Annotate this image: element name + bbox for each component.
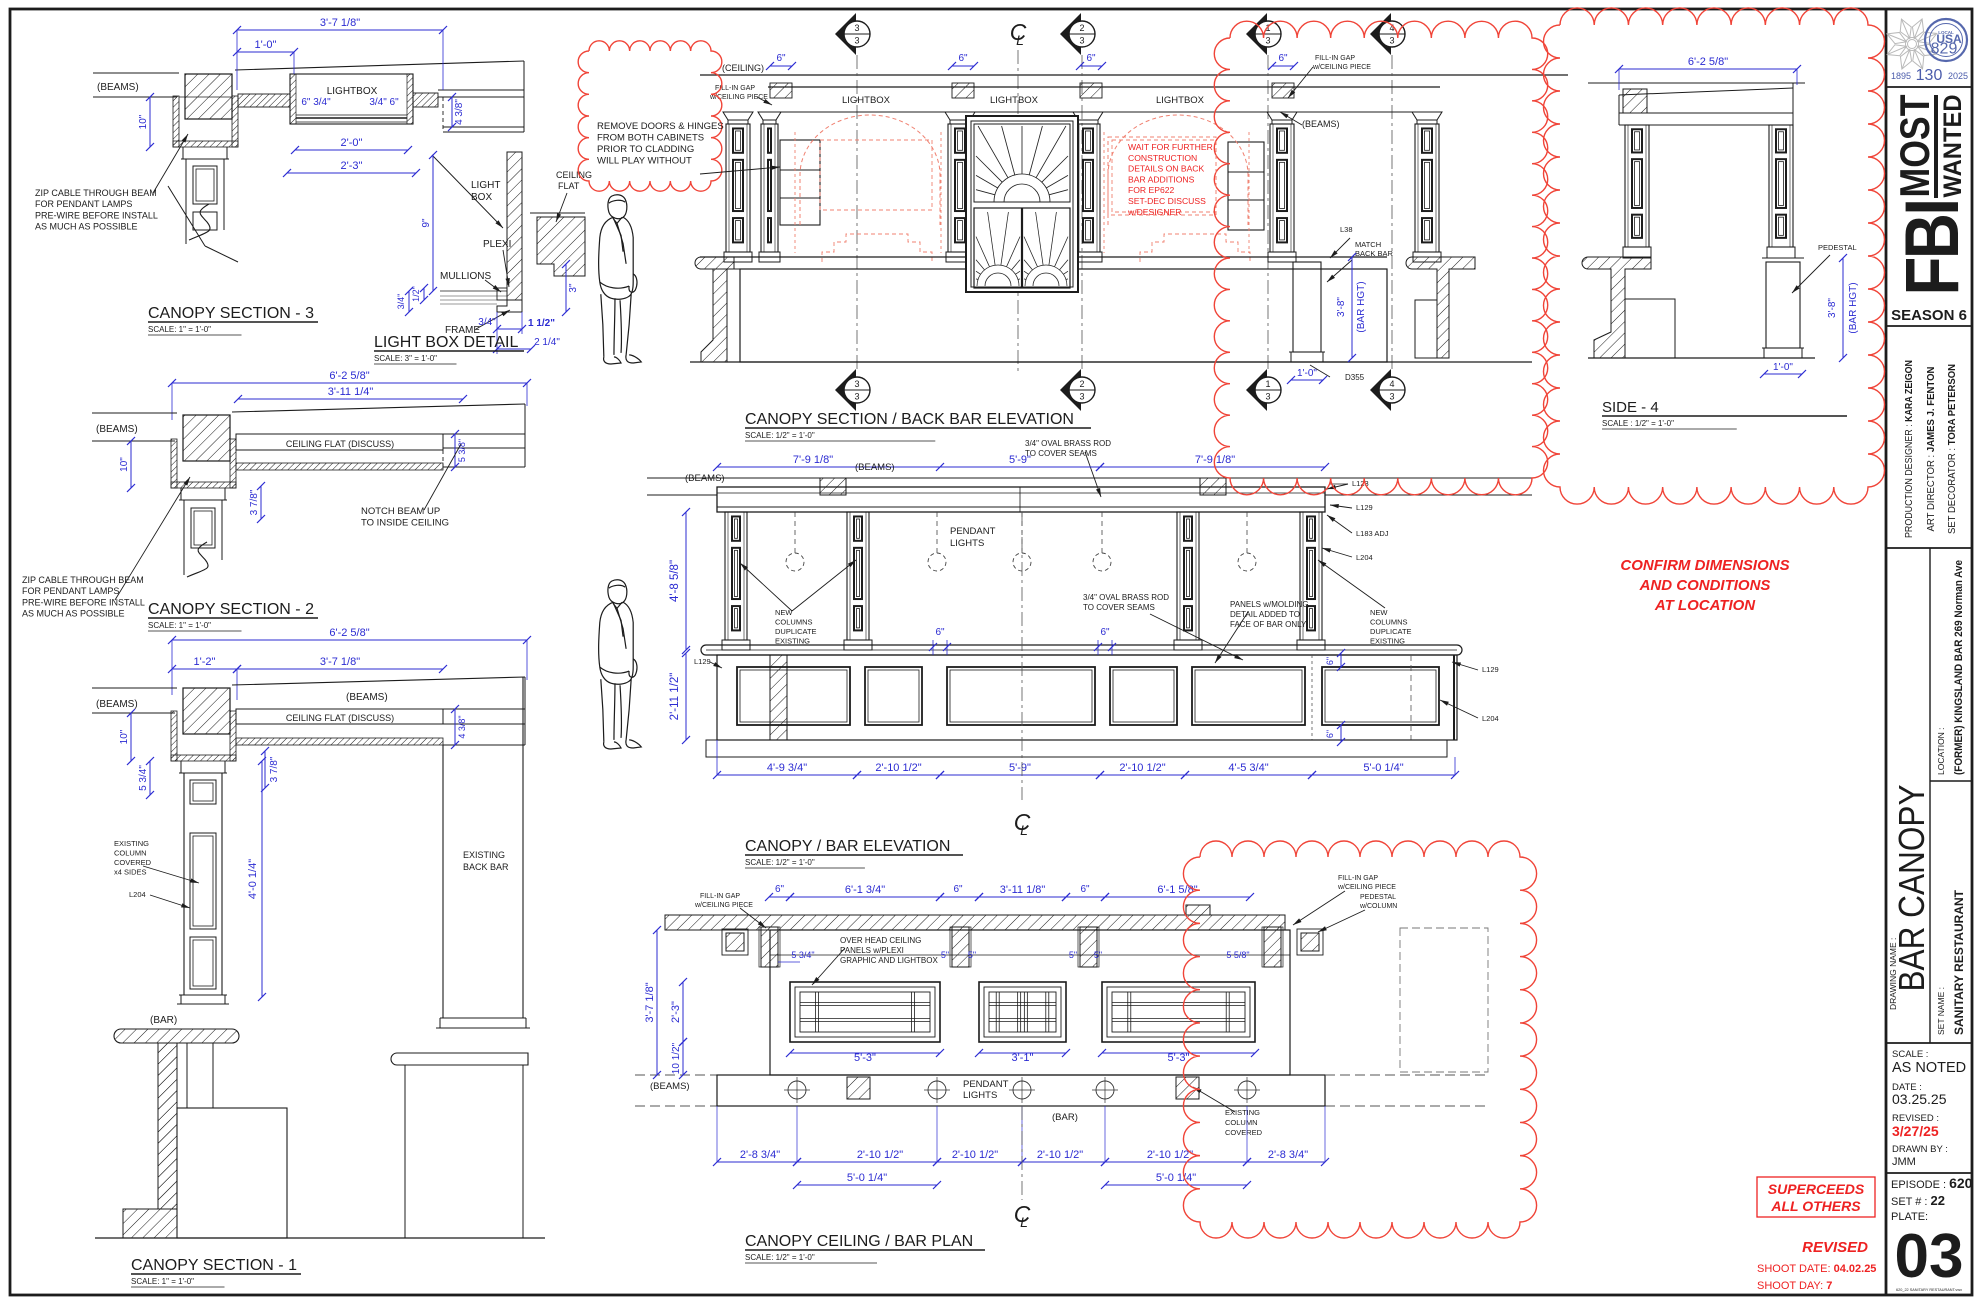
svg-text:5'-0 1/4": 5'-0 1/4": [1156, 1172, 1196, 1184]
svg-text:6'-2 5/8": 6'-2 5/8": [329, 627, 369, 639]
svg-text:EXISTING: EXISTING: [1370, 637, 1405, 646]
svg-text:3/4" 6": 3/4" 6": [369, 97, 399, 108]
svg-text:CANOPY / BAR ELEVATION: CANOPY / BAR ELEVATION: [745, 838, 950, 855]
svg-text:PEDESTAL: PEDESTAL: [1818, 243, 1857, 252]
svg-text:130: 130: [1916, 67, 1943, 84]
svg-text:(BEAMS): (BEAMS): [346, 692, 388, 703]
svg-text:5'-0 1/4": 5'-0 1/4": [847, 1172, 887, 1184]
svg-text:SCALE: 1/2" = 1'-0": SCALE: 1/2" = 1'-0": [745, 1253, 815, 1262]
svg-text:SCALE: 1/2" = 1'-0": SCALE: 1/2" = 1'-0": [745, 431, 815, 440]
svg-text:w/DESIGNER: w/DESIGNER: [1127, 207, 1181, 217]
svg-text:COLUMNS: COLUMNS: [1370, 618, 1408, 627]
svg-text:2'-0": 2'-0": [341, 137, 363, 149]
svg-text:3'-7 1/8": 3'-7 1/8": [644, 982, 656, 1022]
svg-text:SHOOT DATE: 04.02.25: SHOOT DATE: 04.02.25: [1757, 1263, 1876, 1275]
svg-text:2'-10 1/2": 2'-10 1/2": [1037, 1149, 1083, 1161]
svg-text:SUPERCEEDS: SUPERCEEDS: [1768, 1181, 1865, 1197]
svg-text:BACK BAR: BACK BAR: [463, 862, 509, 872]
svg-text:L: L: [1020, 1214, 1028, 1230]
svg-text:PRODUCTION DESIGNER : KARA ZE: PRODUCTION DESIGNER : KARA ZEIGON: [1903, 360, 1915, 538]
svg-text:CEILING: CEILING: [556, 170, 592, 180]
svg-text:L183 ADJ: L183 ADJ: [1356, 529, 1389, 538]
svg-text:(CEILING): (CEILING): [722, 63, 764, 73]
svg-text:DUPLICATE: DUPLICATE: [775, 627, 817, 636]
svg-text:PANELS w/MOLDING: PANELS w/MOLDING: [1230, 600, 1309, 609]
svg-text:4'-8 5/8": 4'-8 5/8": [669, 560, 681, 602]
svg-text:(BEAMS): (BEAMS): [650, 1081, 690, 1092]
svg-text:2'-10 1/2": 2'-10 1/2": [875, 762, 921, 774]
svg-text:(BAR HGT): (BAR HGT): [1356, 281, 1367, 332]
svg-text:3 7/8": 3 7/8": [269, 756, 280, 782]
svg-text:SEASON 6: SEASON 6: [1891, 307, 1967, 324]
svg-text:1'-0": 1'-0": [255, 39, 277, 51]
svg-text:3: 3: [1079, 392, 1084, 402]
svg-text:CONFIRM DIMENSIONS: CONFIRM DIMENSIONS: [1620, 557, 1789, 574]
svg-text:WAIT FOR FURTHER: WAIT FOR FURTHER: [1128, 142, 1213, 152]
svg-text:3'-11 1/4": 3'-11 1/4": [328, 386, 374, 398]
svg-text:WANTED: WANTED: [1939, 95, 1967, 198]
svg-text:LIGHTBOX: LIGHTBOX: [1156, 95, 1205, 106]
svg-text:WILL PLAY WITHOUT: WILL PLAY WITHOUT: [597, 156, 692, 167]
svg-text:CANOPY CEILING / BAR PLAN: CANOPY CEILING / BAR PLAN: [745, 1233, 973, 1250]
svg-text:6": 6": [1100, 627, 1110, 638]
svg-text:SHOOT DAY: 7: SHOOT DAY: 7: [1757, 1280, 1832, 1292]
svg-text:FILL-IN GAP: FILL-IN GAP: [1338, 875, 1378, 882]
svg-text:CONSTRUCTION: CONSTRUCTION: [1128, 153, 1197, 163]
svg-text:1895: 1895: [1891, 71, 1911, 81]
svg-text:w/CEILING PIECE: w/CEILING PIECE: [1337, 884, 1396, 891]
svg-text:EXISTING: EXISTING: [775, 637, 810, 646]
svg-text:LIGHTS: LIGHTS: [950, 538, 984, 549]
svg-text:6": 6": [935, 627, 945, 638]
svg-text:SCALE : 1/2" = 1'-0": SCALE : 1/2" = 1'-0": [1602, 419, 1674, 428]
svg-text:SCALE :: SCALE :: [1892, 1049, 1928, 1060]
svg-text:FILL-IN GAP: FILL-IN GAP: [1315, 55, 1355, 62]
svg-text:BAR ADDITIONS: BAR ADDITIONS: [1128, 174, 1195, 184]
svg-text:SET # : 22: SET # : 22: [1891, 1193, 1945, 1208]
svg-text:620_22 SANITARY RESTAURANT.vwx: 620_22 SANITARY RESTAURANT.vwx: [1896, 1288, 1962, 1292]
svg-text:PEDESTAL: PEDESTAL: [1360, 894, 1396, 901]
svg-text:5": 5": [941, 950, 949, 960]
svg-text:GRAPHIC AND LIGHTBOX: GRAPHIC AND LIGHTBOX: [840, 956, 938, 965]
svg-text:03.25.25: 03.25.25: [1892, 1091, 1947, 1107]
svg-text:TO COVER SEAMS: TO COVER SEAMS: [1083, 603, 1155, 612]
svg-text:3'-1": 3'-1": [1012, 1052, 1034, 1064]
svg-text:3/4" OVAL BRASS ROD: 3/4" OVAL BRASS ROD: [1083, 593, 1169, 602]
svg-text:PENDANT: PENDANT: [963, 1079, 1009, 1090]
svg-text:x4 SIDES: x4 SIDES: [114, 868, 147, 877]
svg-text:1'-0": 1'-0": [1297, 368, 1317, 379]
svg-text:(BEAMS): (BEAMS): [855, 462, 895, 473]
svg-text:829: 829: [1931, 41, 1958, 58]
svg-text:MATCH: MATCH: [1355, 240, 1381, 249]
svg-text:6": 6": [1086, 53, 1096, 64]
svg-text:REVISED: REVISED: [1802, 1239, 1868, 1256]
svg-text:4'-0 1/4": 4'-0 1/4": [247, 859, 259, 899]
svg-text:SIDE - 4: SIDE - 4: [1602, 399, 1659, 416]
svg-text:3'-8": 3'-8": [1827, 298, 1838, 318]
svg-text:3: 3: [1079, 36, 1084, 46]
svg-text:w/COLUMN: w/COLUMN: [1359, 903, 1397, 910]
svg-text:7'-9 1/8": 7'-9 1/8": [793, 454, 833, 466]
svg-text:(BEAMS): (BEAMS): [96, 699, 138, 710]
svg-text:3: 3: [1265, 392, 1270, 402]
svg-text:SCALE: 1/2" = 1'-0": SCALE: 1/2" = 1'-0": [745, 858, 815, 867]
svg-text:FOR PENDANT LAMPS: FOR PENDANT LAMPS: [22, 586, 119, 596]
svg-text:5'-3": 5'-3": [854, 1052, 876, 1064]
svg-text:FLAT: FLAT: [558, 181, 580, 191]
svg-text:9": 9": [421, 218, 432, 228]
svg-text:AND CONDITIONS: AND CONDITIONS: [1639, 577, 1771, 594]
svg-text:w/CEILING PIECE: w/CEILING PIECE: [1312, 64, 1371, 71]
svg-text:CEILING FLAT (DISCUSS): CEILING FLAT (DISCUSS): [286, 713, 394, 723]
svg-text:1'-0": 1'-0": [1773, 362, 1793, 373]
svg-text:DUPLICATE: DUPLICATE: [1370, 627, 1412, 636]
svg-text:3: 3: [1389, 392, 1394, 402]
svg-text:FOR PENDANT LAMPS: FOR PENDANT LAMPS: [35, 199, 132, 209]
svg-text:6'-2 5/8": 6'-2 5/8": [329, 370, 369, 382]
svg-text:AT LOCATION: AT LOCATION: [1654, 597, 1756, 614]
svg-text:2'-3": 2'-3": [341, 160, 363, 172]
svg-text:4'-9 3/4": 4'-9 3/4": [767, 762, 807, 774]
svg-text:5": 5": [1069, 950, 1077, 960]
svg-text:DRAWN BY :: DRAWN BY :: [1892, 1144, 1948, 1155]
svg-text:L204: L204: [1356, 553, 1373, 562]
svg-text:L204: L204: [1482, 714, 1499, 723]
svg-text:NEW: NEW: [1370, 608, 1388, 617]
svg-text:CANOPY SECTION - 1: CANOPY SECTION - 1: [131, 1257, 297, 1274]
svg-text:5'-9": 5'-9": [1009, 762, 1031, 774]
svg-text:(BEAMS): (BEAMS): [96, 424, 138, 435]
svg-text:5 5/8": 5 5/8": [1226, 950, 1249, 960]
svg-text:CANOPY SECTION - 3: CANOPY SECTION - 3: [148, 305, 314, 322]
svg-text:w/CEILING PIECE: w/CEILING PIECE: [694, 902, 753, 909]
svg-text:4 3/8": 4 3/8": [454, 99, 465, 125]
svg-text:BACK BAR: BACK BAR: [1355, 249, 1394, 258]
svg-text:TO INSIDE CEILING: TO INSIDE CEILING: [361, 518, 449, 529]
svg-text:SANITARY RESTAURANT: SANITARY RESTAURANT: [1952, 889, 1966, 1035]
svg-text:1'-2": 1'-2": [194, 656, 216, 668]
svg-text:2'-3": 2'-3": [670, 1001, 682, 1023]
svg-text:PRE-WIRE BEFORE INSTALL: PRE-WIRE BEFORE INSTALL: [22, 597, 145, 607]
svg-text:SCALE: 1" = 1'-0": SCALE: 1" = 1'-0": [148, 325, 211, 334]
svg-text:2'-10 1/2": 2'-10 1/2": [1147, 1149, 1193, 1161]
svg-text:L38: L38: [1340, 225, 1353, 234]
svg-text:6'-1 5/8": 6'-1 5/8": [1157, 884, 1197, 896]
svg-text:2'-10 1/2": 2'-10 1/2": [1119, 762, 1165, 774]
svg-text:BAR CANOPY: BAR CANOPY: [1891, 785, 1932, 992]
svg-text:LIGHTBOX: LIGHTBOX: [842, 95, 891, 106]
svg-text:2025: 2025: [1948, 71, 1968, 81]
svg-text:TO COVER SEAMS: TO COVER SEAMS: [1025, 449, 1097, 458]
svg-text:L129: L129: [1482, 665, 1499, 674]
svg-text:LIGHT: LIGHT: [471, 180, 500, 191]
svg-text:3": 3": [568, 283, 579, 293]
svg-text:2 1/4": 2 1/4": [534, 337, 560, 348]
svg-text:L129: L129: [694, 657, 711, 666]
svg-text:SET DECORATOR : TORA PETERSON: SET DECORATOR : TORA PETERSON: [1946, 364, 1958, 534]
svg-text:COLUMN: COLUMN: [114, 849, 147, 858]
svg-text:2'-10 1/2": 2'-10 1/2": [857, 1149, 903, 1161]
svg-text:LIGHTBOX: LIGHTBOX: [990, 95, 1039, 106]
svg-text:3: 3: [854, 379, 859, 389]
svg-text:2: 2: [1079, 379, 1084, 389]
svg-text:DETAIL ADDED TO: DETAIL ADDED TO: [1230, 610, 1300, 619]
svg-text:10": 10": [119, 457, 130, 472]
svg-text:3 7/8": 3 7/8": [249, 489, 260, 515]
svg-text:5": 5": [968, 950, 976, 960]
svg-text:6": 6": [1080, 884, 1090, 895]
svg-text:5 3/4": 5 3/4": [791, 950, 814, 960]
svg-text:3'-11 1/8": 3'-11 1/8": [1000, 884, 1046, 896]
svg-text:5'-3": 5'-3": [1168, 1052, 1190, 1064]
svg-text:3/4" OVAL BRASS ROD: 3/4" OVAL BRASS ROD: [1025, 439, 1111, 448]
svg-text:1/2": 1/2": [411, 286, 421, 302]
svg-text:3: 3: [854, 36, 859, 46]
svg-text:3: 3: [1265, 36, 1270, 46]
svg-text:ART DIRECTOR : JAMES J. FENT: ART DIRECTOR : JAMES J. FENTON: [1925, 367, 1937, 532]
svg-text:5": 5": [1094, 950, 1102, 960]
svg-text:COLUMNS: COLUMNS: [775, 618, 813, 627]
svg-text:6": 6": [776, 53, 786, 64]
svg-text:(BEAMS): (BEAMS): [97, 82, 139, 93]
svg-text:2'-8 3/4": 2'-8 3/4": [740, 1149, 780, 1161]
svg-text:PRIOR TO CLADDING: PRIOR TO CLADDING: [597, 144, 694, 155]
svg-text:(BAR HGT): (BAR HGT): [1848, 282, 1859, 333]
svg-text:L: L: [1016, 32, 1024, 48]
svg-text:2: 2: [1079, 23, 1084, 33]
svg-text:10": 10": [119, 729, 130, 744]
svg-text:FBI: FBI: [1890, 201, 1975, 296]
svg-text:MOST: MOST: [1891, 94, 1938, 197]
svg-text:6": 6": [775, 884, 785, 895]
svg-text:EXISTING: EXISTING: [114, 839, 149, 848]
svg-text:6": 6": [1325, 657, 1335, 665]
svg-text:3: 3: [1389, 36, 1394, 46]
svg-text:AS MUCH AS POSSIBLE: AS MUCH AS POSSIBLE: [22, 609, 125, 619]
svg-text:3: 3: [854, 23, 859, 33]
svg-text:COLUMN: COLUMN: [1225, 1118, 1258, 1127]
svg-text:5 3/4": 5 3/4": [138, 765, 149, 791]
svg-text:SCALE: 1" = 1'-0": SCALE: 1" = 1'-0": [148, 621, 211, 630]
svg-text:L: L: [1020, 822, 1028, 838]
svg-text:D355: D355: [1345, 373, 1365, 382]
svg-text:LIGHTS: LIGHTS: [963, 1090, 997, 1101]
svg-text:LIGHT BOX DETAIL: LIGHT BOX DETAIL: [374, 334, 518, 351]
svg-text:03: 03: [1895, 1222, 1964, 1291]
svg-text:ALL OTHERS: ALL OTHERS: [1770, 1198, 1861, 1214]
svg-text:L204: L204: [129, 890, 146, 899]
svg-text:(BAR): (BAR): [150, 1015, 177, 1026]
svg-text:(BEAMS): (BEAMS): [1302, 119, 1340, 129]
svg-text:6": 6": [1278, 53, 1288, 64]
svg-text:L129: L129: [1356, 503, 1373, 512]
svg-text:COVERED: COVERED: [114, 858, 152, 867]
svg-text:PANELS w/PLEXI: PANELS w/PLEXI: [840, 946, 904, 955]
svg-text:5'-9": 5'-9": [1009, 454, 1031, 466]
svg-text:JMM: JMM: [1892, 1156, 1916, 1168]
svg-text:BOX: BOX: [471, 192, 492, 203]
svg-text:MULLIONS: MULLIONS: [440, 271, 491, 282]
svg-text:OVER HEAD CEILING: OVER HEAD CEILING: [840, 936, 921, 945]
svg-text:AS NOTED: AS NOTED: [1892, 1060, 1966, 1076]
svg-text:LOCATION :: LOCATION :: [1936, 727, 1946, 775]
svg-text:10": 10": [138, 114, 149, 129]
svg-text:3'-7 1/8": 3'-7 1/8": [320, 656, 360, 668]
svg-text:ZIP CABLE THROUGH BEAM: ZIP CABLE THROUGH BEAM: [35, 188, 157, 198]
svg-text:3'-7 1/8": 3'-7 1/8": [320, 17, 360, 29]
svg-text:2'-10 1/2": 2'-10 1/2": [952, 1149, 998, 1161]
svg-text:4 3/8": 4 3/8": [457, 715, 467, 738]
svg-text:6": 6": [953, 884, 963, 895]
svg-text:2'-8 3/4": 2'-8 3/4": [1268, 1149, 1308, 1161]
svg-text:PRE-WIRE BEFORE INSTALL: PRE-WIRE BEFORE INSTALL: [35, 210, 158, 220]
svg-text:SCALE: 1" = 1'-0": SCALE: 1" = 1'-0": [131, 1277, 194, 1286]
svg-text:3: 3: [854, 392, 859, 402]
svg-text:LIGHTBOX: LIGHTBOX: [327, 86, 378, 97]
svg-text:(BAR): (BAR): [1052, 1112, 1078, 1123]
svg-text:REMOVE DOORS & HINGES: REMOVE DOORS & HINGES: [597, 121, 724, 132]
svg-text:3/4": 3/4": [478, 317, 496, 328]
svg-text:6": 6": [958, 53, 968, 64]
svg-text:COVERED: COVERED: [1225, 1128, 1263, 1137]
svg-text:5'-0 1/4": 5'-0 1/4": [1363, 762, 1403, 774]
svg-text:4: 4: [1389, 379, 1394, 389]
svg-text:FROM BOTH CABINETS: FROM BOTH CABINETS: [597, 133, 704, 144]
svg-text:FOR EP622: FOR EP622: [1128, 185, 1175, 195]
svg-text:6": 6": [1325, 730, 1335, 738]
svg-text:SET-DEC DISCUSS: SET-DEC DISCUSS: [1128, 196, 1206, 206]
svg-text:6" 3/4": 6" 3/4": [301, 97, 331, 108]
svg-text:3'-8": 3'-8": [1336, 297, 1347, 317]
svg-text:1: 1: [1265, 379, 1270, 389]
svg-text:DETAILS ON BACK: DETAILS ON BACK: [1128, 164, 1205, 174]
svg-text:CEILING FLAT (DISCUSS): CEILING FLAT (DISCUSS): [286, 439, 394, 449]
svg-text:CANOPY SECTION / BACK BAR ELEV: CANOPY SECTION / BACK BAR ELEVATION: [745, 411, 1074, 428]
svg-text:3/4": 3/4": [396, 294, 406, 310]
svg-text:CANOPY SECTION - 2: CANOPY SECTION - 2: [148, 601, 314, 618]
svg-text:2'-11 1/2": 2'-11 1/2": [669, 673, 681, 721]
svg-text:AS MUCH AS POSSIBLE: AS MUCH AS POSSIBLE: [35, 222, 138, 232]
svg-text:5 3/8": 5 3/8": [457, 439, 467, 462]
svg-text:PENDANT: PENDANT: [950, 526, 996, 537]
svg-text:6'-1 3/4": 6'-1 3/4": [845, 884, 885, 896]
svg-text:10 1/2": 10 1/2": [671, 1042, 682, 1074]
svg-text:4'-5 3/4": 4'-5 3/4": [1228, 762, 1268, 774]
svg-text:PLEXI: PLEXI: [483, 239, 511, 250]
svg-text:(FORMER) KINGSLAND BAR 269: (FORMER) KINGSLAND BAR 269 Norman Ave: [1953, 560, 1965, 775]
svg-text:SCALE: 3" = 1'-0": SCALE: 3" = 1'-0": [374, 354, 437, 363]
svg-text:1 1/2": 1 1/2": [528, 318, 555, 329]
svg-text:FILL-IN GAP: FILL-IN GAP: [700, 893, 740, 900]
svg-text:3/27/25: 3/27/25: [1892, 1123, 1939, 1139]
svg-text:EXISTING: EXISTING: [463, 850, 505, 860]
svg-text:NOTCH BEAM UP: NOTCH BEAM UP: [361, 506, 440, 517]
svg-text:SET NAME :: SET NAME :: [1936, 987, 1946, 1035]
svg-text:6'-2 5/8": 6'-2 5/8": [1688, 56, 1728, 68]
